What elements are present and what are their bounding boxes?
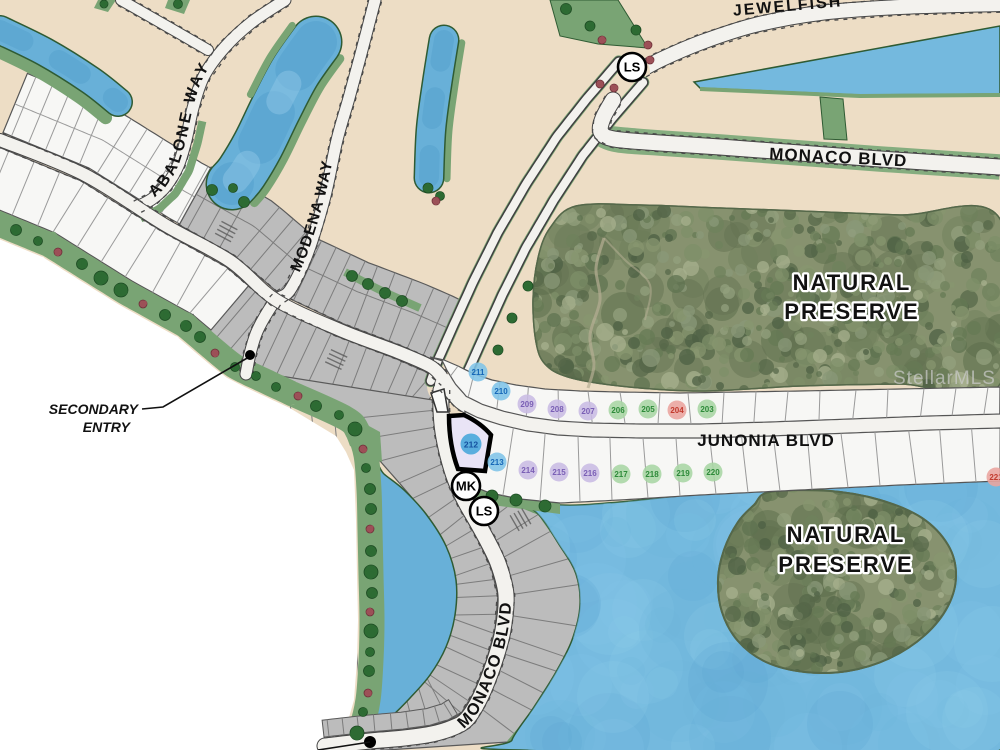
svg-text:206: 206 [611,406,625,415]
svg-text:NATURAL: NATURAL [787,522,906,547]
svg-text:219: 219 [676,469,690,478]
svg-text:203: 203 [700,405,714,414]
svg-text:210: 210 [494,387,508,396]
svg-text:208: 208 [550,405,564,414]
svg-text:PRESERVE: PRESERVE [784,299,919,324]
svg-text:LS: LS [476,504,493,519]
svg-text:NATURAL: NATURAL [793,270,912,295]
svg-text:216: 216 [583,469,597,478]
svg-text:215: 215 [552,468,566,477]
svg-text:218: 218 [645,470,659,479]
svg-text:212: 212 [464,439,478,449]
svg-text:207: 207 [581,407,595,416]
svg-text:LS: LS [624,60,641,75]
svg-text:209: 209 [520,400,534,409]
svg-text:211: 211 [472,368,485,377]
svg-text:MK: MK [456,479,477,494]
svg-text:StellarMLS: StellarMLS [893,368,996,389]
svg-text:ENTRY: ENTRY [83,419,132,435]
svg-text:204: 204 [670,406,684,415]
svg-text:221: 221 [989,473,1000,482]
svg-text:JUNONIA BLVD: JUNONIA BLVD [697,431,835,450]
svg-text:PRESERVE: PRESERVE [778,552,913,577]
svg-text:SECONDARY: SECONDARY [49,401,140,417]
svg-text:217: 217 [614,470,628,479]
svg-text:220: 220 [706,468,720,477]
svg-text:213: 213 [490,458,504,467]
svg-text:214: 214 [521,466,535,475]
svg-text:205: 205 [641,405,655,414]
